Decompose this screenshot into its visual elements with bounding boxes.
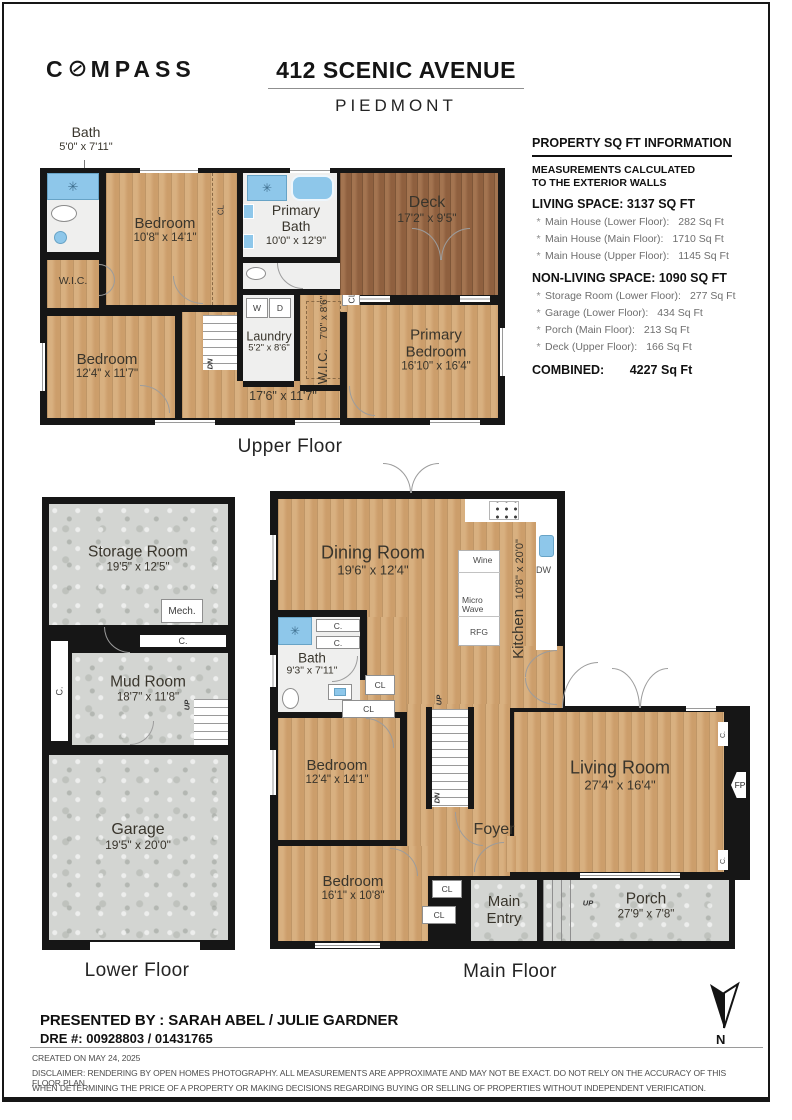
living-item: * Main House (Upper Floor): 1145 Sq Ft [532,248,764,265]
garage-door-opening [90,942,200,950]
wic-left-label: W.I.C. [59,276,88,288]
footer-divider [30,1047,763,1048]
room-name: W.I.C. [315,349,330,384]
room-dims: 5'0" x 7'11" [59,141,112,154]
room-dims: 19'5" x 20'0" [105,839,171,853]
room-name: Deck [397,194,456,212]
room-name: Living Room [570,757,670,778]
washer-label: W [253,303,261,313]
lower-stairs [194,699,228,745]
wall-segment [360,610,367,680]
hall-dims-label: 17'6" x 11'7" [249,389,317,403]
presented-by: PRESENTED BY : SARAH ABEL / JULIE GARDNE… [40,1012,398,1029]
closet-dashed-line [212,173,213,305]
vanity-basin [334,688,346,696]
north-label: N [716,1032,725,1047]
combined-value: 4227 Sq Ft [630,363,693,377]
room-dims: 19'5" x 12'5" [88,561,188,574]
bedroom-left-label: Bedroom 12'4" x 11'7" [76,351,138,381]
upper-floor-plan: ✳ CL Bedroom 10'8" x 14'1" W.I.C. Bedroo… [40,168,505,425]
dishwasher-label: DW [536,566,551,576]
bathtub-icon [291,175,334,201]
room-dims: 5'2" x 8'6" [244,344,294,355]
living-item-value: 1710 Sq Ft [672,231,723,248]
nonliving-item-value: 166 Sq Ft [646,339,692,356]
room-dims: 12'4" x 11'7" [76,368,138,381]
shower-sparkle-icon: ✳ [290,624,300,638]
room-name: Storage Room [88,544,188,562]
door-arc [612,668,640,708]
fireplace-label: FP [735,780,746,790]
window [315,943,380,948]
door-arc [640,668,668,708]
bedroom-mid-label: Bedroom 12'4" x 14'1" [305,757,368,787]
toilet-icon [246,267,266,280]
window [40,343,45,391]
nonliving-item-label: Porch (Main Floor): [545,322,635,339]
nonliving-item-label: Storage Room (Lower Floor): [545,288,681,305]
island-divider [458,616,500,617]
room-dims: 16'10" x 16'4" [381,361,491,374]
main-floor-plan: Dining Room 19'6" x 12'4" DW Wine Micro … [270,460,752,952]
closet-label: CL [363,704,374,714]
nonliving-item: * Garage (Lower Floor): 434 Sq Ft [532,305,764,322]
dre-number: DRE #: 00928803 / 01431765 [40,1031,213,1046]
window [460,296,490,302]
closet-label: CL [375,680,386,690]
wall-segment [237,263,243,381]
closet-label: C. [334,638,343,648]
room-dims: 10'8" x 14'1" [133,232,196,245]
shower-main-bath: ✳ [278,617,312,645]
room-name: Primary Bath [258,203,334,235]
island-wine-label: Wine [473,556,492,565]
bullet-icon: * [532,214,545,231]
dryer-label: D [277,303,283,313]
stove-icon [489,501,519,520]
room-name: Bedroom [76,351,138,368]
hall-patch [367,617,407,712]
property-city: PIEDMONT [268,96,524,116]
room-name: Kitchen [510,609,527,659]
compass-o-icon [69,56,86,83]
shower-primary-bath: ✳ [247,175,287,201]
living-space-header: LIVING SPACE: 3137 SQ FT [532,197,764,211]
closet-c2: C. [316,636,360,649]
closet-label: C. [720,857,727,864]
living-item-value: 282 Sq Ft [678,214,724,231]
dryer-box: D [269,298,291,318]
bedroom-top-label: Bedroom 10'8" x 14'1" [133,215,196,245]
combined-row: COMBINED: 4227 Sq Ft [532,363,764,377]
bullet-icon: * [532,339,545,356]
mudroom-label: Mud Room 18'7" x 11'8" [110,674,186,705]
closet-label: C. [720,731,727,738]
compass-logo-text-left: C [46,56,68,83]
room-name: Porch [618,891,675,909]
stairs-up-label: UP [184,700,193,710]
wall-segment [340,312,347,418]
nonliving-item-label: Deck (Upper Floor): [545,339,637,356]
wall-segment [243,381,294,387]
closet-cl2: CL [342,700,395,718]
nonliving-item: * Deck (Upper Floor): 166 Sq Ft [532,339,764,356]
room-name: Garage [105,821,171,839]
room-dims: 12'4" x 14'1" [305,774,368,787]
nonliving-item-label: Garage (Lower Floor): [545,305,648,322]
window [686,706,716,711]
storage-label: Storage Room 19'5" x 12'5" [88,544,188,575]
closet-label: CL [442,884,453,894]
island-rfg-label: RFG [470,628,488,637]
info-subtitle-2: TO THE EXTERIOR WALLS [532,177,764,190]
porch-steps [543,880,579,941]
window [270,655,276,687]
primary-bedroom-label: Primary Bedroom 16'10" x 16'4" [381,326,491,373]
porch-label: Porch 27'9" x 7'8" [618,891,675,922]
primary-bath-label: Primary Bath 10'0" x 12'9" [258,203,334,247]
info-panel: PROPERTY SQ FT INFORMATION MEASUREMENTS … [532,134,764,377]
island-divider [458,572,500,573]
living-item-label: Main House (Main Floor): [545,231,663,248]
window [295,420,340,425]
living-item: * Main House (Main Floor): 1710 Sq Ft [532,231,764,248]
window [270,535,276,580]
room-dims: 16'1" x 10'8" [321,890,384,903]
wall-segment [272,610,367,617]
compass-logo-text-right: MPASS [91,56,196,83]
bullet-icon: * [532,322,545,339]
shower-sparkle-icon: ✳ [68,179,79,195]
shower-upper-bath: ✳ [47,173,99,200]
window [290,168,330,173]
room-dims: 10'8" x 20'0" [514,539,526,599]
door-arc [411,463,439,493]
wic-center-label: W.I.C. 7'0" x 8'6" [314,296,332,385]
room-dims: 7'0" x 8'6" [319,296,330,340]
disclaimer-line-2: WHEN DETERMINING THE PRICE OF A PROPERTY… [32,1083,752,1093]
closet-label: C. [55,687,65,696]
porch-up-label: UP [583,900,593,909]
closet-c1: C. [316,619,360,632]
window [580,873,680,878]
closet-label: C. [334,621,343,631]
closet-c-top: C. [138,633,228,649]
closet-label: C. [179,636,188,646]
room-name: Bedroom [305,757,368,774]
deck-label: Deck 17'2" x 9'5" [397,194,456,226]
room-dims: 27'9" x 7'8" [618,908,675,921]
closet-label: CL [434,910,445,920]
island-microwave-label: Micro Wave [462,596,496,615]
nonliving-item-value: 213 Sq Ft [644,322,690,339]
mech-label: Mech. [168,606,195,617]
closet-entry2: CL [422,906,456,924]
door-arc [562,662,598,708]
stairs-up-label: UP [436,695,445,705]
closet-c-left: C. [49,639,70,743]
window [140,168,198,173]
vanity-sink-icon [243,204,254,219]
room-name: Dining Room [321,542,425,563]
toilet-icon [51,205,77,222]
info-subtitle-1: MEASUREMENTS CALCULATED [532,164,764,177]
shower-sparkle-icon: ✳ [262,181,272,195]
nonliving-item: * Storage Room (Lower Floor): 277 Sq Ft [532,288,764,305]
room-dims: 27'4" x 16'4" [570,778,670,793]
property-address: 412 SCENIC AVENUE [268,57,524,84]
room-name: Bedroom [321,873,384,890]
created-on: CREATED ON MAY 24, 2025 [32,1053,140,1063]
upper-bath-label: Bath 5'0" x 7'11" [59,125,112,153]
stairs-dn-label: DN [207,359,216,370]
mech-closet: Mech. [161,599,203,623]
compass-logo: CMPASS [46,56,196,83]
closet-right-bottom: C. [718,850,728,870]
foyer-living-opening [506,836,516,872]
bullet-icon: * [532,248,545,265]
main-entry-label: Main Entry [478,893,530,927]
nonliving-space-header: NON-LIVING SPACE: 1090 SQ FT [532,271,764,285]
room-dims: 19'6" x 12'4" [321,563,425,578]
room-name: Bedroom [133,215,196,232]
room-name: Mud Room [110,674,186,692]
closet-cl1: CL [365,675,395,695]
window [155,420,215,425]
stairs-dn-label: DN [434,793,443,804]
living-item: * Main House (Lower Floor): 282 Sq Ft [532,214,764,231]
closet-label: CL [216,205,225,215]
nonliving-item: * Porch (Main Floor): 213 Sq Ft [532,322,764,339]
washer-box: W [246,298,268,318]
info-panel-title: PROPERTY SQ FT INFORMATION [532,136,732,157]
living-item-value: 1145 Sq Ft [678,248,729,265]
living-label: Living Room 27'4" x 16'4" [570,757,670,792]
sink-icon [54,231,67,244]
address-underline [268,88,524,89]
room-name: Primary Bedroom [381,326,491,360]
wall-segment [468,707,474,809]
window [270,750,276,795]
window [430,420,480,425]
bullet-icon: * [532,288,545,305]
room-dims: 10'0" x 12'9" [258,235,334,248]
bullet-icon: * [532,231,545,248]
kitchen-sink-icon [539,535,554,557]
north-arrow-icon [704,980,744,1032]
door-arc [383,463,411,493]
room-name: Bath [59,125,112,141]
combined-label: COMBINED: [532,363,604,377]
floor-plan-page: CMPASS 412 SCENIC AVENUE PIEDMONT PROPER… [0,0,792,1120]
kitchen-label: Kitchen 10'8" x 20'0" [510,539,528,659]
living-item-label: Main House (Lower Floor): [545,214,669,231]
toilet-icon [282,688,299,709]
main-floor-title: Main Floor [463,961,557,983]
room-name: Laundry [244,329,294,343]
room-dims: 18'7" x 11'8" [110,691,186,704]
garage-label: Garage 19'5" x 20'0" [105,821,171,853]
bedroom-bottom-label: Bedroom 16'1" x 10'8" [321,873,384,903]
vanity-icon [328,684,352,700]
lower-floor-plan: Storage Room 19'5" x 12'5" Mech. C. C. M… [42,497,235,950]
laundry-label: Laundry 5'2" x 8'6" [244,329,294,354]
upper-floor-title: Upper Floor [238,436,343,458]
window [360,296,390,302]
room-dims: 17'2" x 9'5" [397,212,456,226]
closet-right-top: C. [718,722,728,746]
closet-entry1: CL [432,880,462,898]
living-item-label: Main House (Upper Floor): [545,248,669,265]
bullet-icon: * [532,305,545,322]
nonliving-item-value: 434 Sq Ft [657,305,703,322]
vanity-sink-icon [243,234,254,249]
window [500,328,505,376]
lower-floor-title: Lower Floor [85,960,190,982]
nonliving-item-value: 277 Sq Ft [690,288,736,305]
dining-label: Dining Room 19'6" x 12'4" [321,542,425,577]
